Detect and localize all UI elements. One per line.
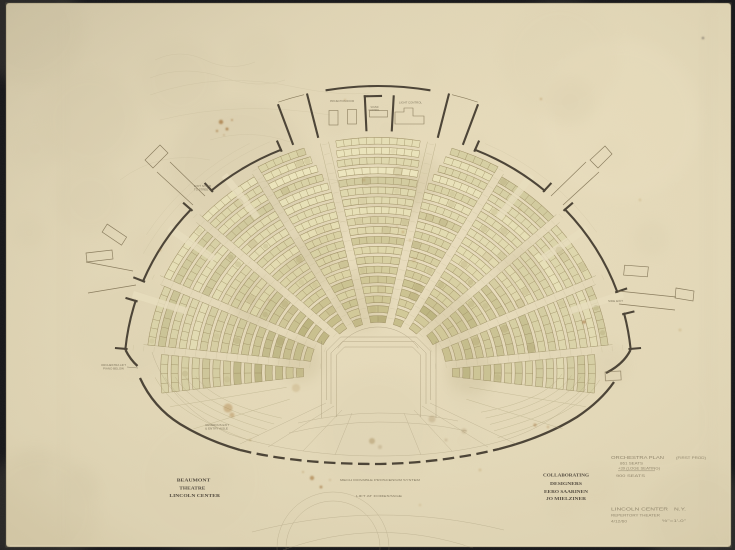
svg-text:861 SEATS: 861 SEATS <box>620 462 644 466</box>
svg-text:MECH MOVABLE PROSCENIUM SYS: MECH MOVABLE PROSCENIUM SYSTEM <box>340 478 420 482</box>
svg-text:COLLABORATING: COLLABORATING <box>543 473 589 478</box>
svg-text:EXIT STAIR: EXIT STAIR <box>194 184 211 188</box>
svg-text:ORCHESTRA LIFT: ORCHESTRA LIFT <box>101 363 126 367</box>
svg-text:THEATRE: THEATRE <box>179 485 205 490</box>
svg-text:& ENTRY AISLE: & ENTRY AISLE <box>205 427 228 431</box>
svg-text:CONTROL: CONTROL <box>369 108 380 112</box>
svg-text:4/12/60: 4/12/60 <box>611 520 627 524</box>
svg-text:REPERTORY THEATER: REPERTORY THEATER <box>611 514 660 518</box>
svg-text:LIFT AT FORESTAGE: LIFT AT FORESTAGE <box>356 494 402 498</box>
svg-text:PROJECTION ROOM: PROJECTION ROOM <box>330 99 354 103</box>
svg-text:PIANO BELOW: PIANO BELOW <box>103 367 125 371</box>
svg-text:(FIRST PROD): (FIRST PROD) <box>676 456 707 460</box>
svg-text:LINCOLN CENTER: LINCOLN CENTER <box>169 493 220 498</box>
svg-text:900 SEATS: 900 SEATS <box>616 473 645 478</box>
svg-text:½"=1′-0": ½"=1′-0" <box>662 519 687 523</box>
svg-text:TO STREET: TO STREET <box>194 188 210 192</box>
svg-text:JO MIELZINER: JO MIELZINER <box>546 496 587 501</box>
svg-text:EERO SAARINEN: EERO SAARINEN <box>544 489 589 494</box>
svg-text:N.Y.: N.Y. <box>674 507 686 512</box>
svg-text:GENEROUS EXIT: GENEROUS EXIT <box>205 423 229 427</box>
svg-text:LIGHT CONTROL: LIGHT CONTROL <box>399 101 423 105</box>
svg-text:SIDE EXIT: SIDE EXIT <box>608 299 623 303</box>
svg-text:LINCOLN CENTER: LINCOLN CENTER <box>611 507 668 512</box>
svg-text:BEAUMONT: BEAUMONT <box>177 477 211 482</box>
svg-text:+39 (LOGE SEATING): +39 (LOGE SEATING) <box>618 467 660 471</box>
svg-text:ORCHESTRA PLAN: ORCHESTRA PLAN <box>611 455 664 460</box>
svg-text:DESIGNERS: DESIGNERS <box>550 481 583 486</box>
